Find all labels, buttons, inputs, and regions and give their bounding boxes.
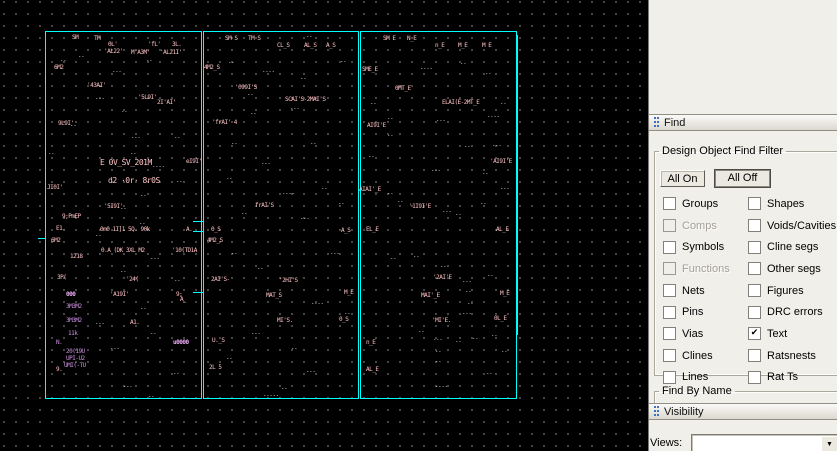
silkscreen-text: A_S (326, 43, 335, 49)
silkscreen-text: .. (435, 358, 441, 364)
checkbox-box[interactable] (663, 327, 676, 340)
checkbox-label: Figures (767, 285, 804, 297)
silkscreen-text: .. (390, 255, 396, 261)
chevron-down-icon[interactable]: ▼ (821, 436, 837, 451)
silkscreen-text: A. (186, 227, 192, 233)
silkscreen-text: .. (321, 185, 327, 191)
silkscreen-text: .. (485, 70, 491, 76)
silkscreen-text: 3P( (57, 275, 66, 281)
silkscreen-text: ... (300, 215, 309, 221)
silkscreen-text: N. (56, 340, 62, 346)
silkscreen-text: A_ (180, 297, 186, 303)
silkscreen-text: .... (420, 65, 432, 71)
silkscreen-text: d2 ·0r· 8r0S (108, 178, 160, 184)
silkscreen-text: E 0V_SV_201M (100, 160, 152, 166)
silkscreen-text: .. (300, 75, 306, 81)
checkbox-label: Lines (682, 371, 708, 383)
checkbox-box (663, 262, 676, 275)
silkscreen-text: AL_E (366, 367, 378, 373)
silkscreen-text: .. (226, 175, 232, 181)
board-tick (193, 292, 203, 293)
views-combobox[interactable]: ▼ (691, 434, 837, 451)
silkscreen-text: M E (482, 43, 491, 49)
silkscreen-text: M_E (458, 43, 467, 49)
silkscreen-text: ..... (263, 392, 279, 398)
checkbox-box[interactable] (663, 371, 676, 384)
checkmark-icon: ✔ (751, 328, 759, 338)
silkscreen-text: n_E (366, 340, 375, 346)
silkscreen-text: '43AI' (87, 83, 106, 89)
silkscreen-text: frAI'S (255, 203, 274, 209)
silkscreen-text: A1. (130, 320, 139, 326)
silkscreen-text: .. (121, 108, 127, 114)
silkscreen-text: ... (442, 208, 451, 214)
silkscreen-text: .... (487, 113, 499, 119)
silkscreen-text: ... (290, 105, 299, 111)
silkscreen-text: n_E (435, 43, 444, 49)
silkscreen-text: 2I'AI' (157, 100, 176, 106)
silkscreen-text: ... (123, 383, 132, 389)
views-label: Views: (650, 437, 682, 449)
silkscreen-text: .. (120, 205, 126, 211)
silkscreen-text: ... (261, 160, 270, 166)
silkscreen-text: .. (465, 288, 471, 294)
silkscreen-text: .. (48, 150, 54, 156)
silkscreen-text: .. (173, 370, 179, 376)
silkscreen-text: .. (241, 210, 247, 216)
silkscreen-text: ... (492, 142, 501, 148)
silkscreen-text: .. (78, 53, 84, 59)
silkscreen-text: .. (174, 277, 180, 283)
silkscreen-text: UMI(-TU (64, 363, 86, 369)
checkbox-box[interactable] (748, 306, 761, 319)
checkbox-box[interactable] (748, 371, 761, 384)
silkscreen-text: .. (340, 58, 346, 64)
silkscreen-text: AIAI'_E (359, 187, 381, 193)
silkscreen-text: 2L 5 (209, 365, 221, 371)
checkbox-label: Cline segs (767, 241, 818, 253)
checkbox-ratsnests[interactable]: Ratsnests (748, 345, 837, 367)
silkscreen-text: 0.A (DK 3XL M2 (101, 248, 145, 254)
silkscreen-text: .. (486, 370, 492, 376)
checkbox-label: Functions (682, 263, 730, 275)
silkscreen-text: 'MI'E. (432, 318, 451, 324)
checkbox-box[interactable] (663, 241, 676, 254)
silkscreen-text: '2HI'S (279, 278, 298, 284)
panel-grip-icon (654, 406, 659, 417)
silkscreen-text: .. (387, 132, 393, 138)
silkscreen-text: A_S (341, 228, 350, 234)
checkbox-text[interactable]: ✔Text (748, 323, 837, 345)
silkscreen-text: ... (131, 134, 140, 140)
silkscreen-text: .. (291, 345, 297, 351)
silkscreen-text: .. (387, 115, 393, 121)
silkscreen-text: ... (95, 95, 104, 101)
silkscreen-text: ... (95, 320, 104, 326)
silkscreen-text: .. (480, 200, 486, 206)
silkscreen-text: SM E (383, 36, 395, 42)
checkbox-label: Pins (682, 306, 703, 318)
checkbox-comps: Comps (663, 215, 748, 237)
silkscreen-text: .. (247, 91, 253, 97)
silkscreen-text: MAI'_E (421, 293, 440, 299)
silkscreen-text: .. (464, 143, 470, 149)
silkscreen-text: .. (130, 150, 136, 156)
silkscreen-text: '2AI'E (433, 275, 452, 281)
checkbox-box[interactable] (748, 284, 761, 297)
visibility-panel-body: Views: ▼ (649, 420, 837, 451)
find-filter-group-title: Design Object Find Filter (659, 145, 786, 157)
silkscreen-text: .. (60, 57, 66, 63)
silkscreen-text: ... (462, 310, 471, 316)
checkbox-label: Text (767, 328, 787, 340)
checkbox-label: Voids/Cavities (767, 220, 836, 232)
silkscreen-text: JI0I' (47, 185, 63, 191)
silkscreen-text: .. (231, 250, 237, 256)
checkbox-other-segs[interactable]: Other segs (748, 258, 837, 280)
silkscreen-text: .. (120, 268, 126, 274)
silkscreen-text: EL_E (366, 227, 378, 233)
silkscreen-text: AI9I'E (367, 123, 386, 129)
silkscreen-text: SM S (225, 36, 237, 42)
checkbox-label: Groups (682, 198, 718, 210)
silkscreen-text: TM S (248, 36, 260, 42)
silkscreen-text: MI'S. (277, 318, 293, 324)
silkscreen-text: .. (440, 263, 446, 269)
design-canvas[interactable]: SMTM0L''fL'3L.'AL22'M'A3M''AL21I'6M2'43A… (0, 0, 648, 451)
silkscreen-text: .. (487, 272, 493, 278)
checkbox-box checked[interactable]: ✔ (748, 327, 761, 340)
silkscreen-text: 2AI'S- (211, 277, 230, 283)
board-tick (193, 231, 203, 232)
silkscreen-text: .. (482, 170, 488, 176)
checkbox-label: Other segs (767, 263, 821, 275)
silkscreen-text: 'AL21I' (160, 50, 182, 56)
silkscreen-text: 1218 (70, 254, 82, 260)
silkscreen-text: .. (281, 385, 287, 391)
silkscreen-text: .. (250, 110, 256, 116)
checkbox-cline-segs[interactable]: Cline segs (748, 236, 837, 258)
silkscreen-text: .. (501, 348, 507, 354)
silkscreen-text: ... (436, 117, 445, 123)
silkscreen-text: 3M3M2 (66, 318, 82, 324)
silkscreen-text: 9. (56, 367, 62, 373)
checkbox-label: Comps (682, 220, 717, 232)
silkscreen-text: 0L_E (494, 316, 506, 322)
silkscreen-text: 4M2_S (204, 65, 220, 71)
checkbox-symbols[interactable]: Symbols (663, 236, 748, 258)
checkbox-shapes[interactable]: Shapes (748, 193, 837, 215)
silkscreen-text: .. (174, 134, 180, 140)
checkbox-voids-cavities[interactable]: Voids/Cavities (748, 215, 837, 237)
checkbox-box[interactable] (748, 262, 761, 275)
checkbox-label: Clines (682, 350, 713, 362)
design-object-find-filter-group: Design Object Find Filter All On All Off… (654, 145, 837, 376)
silkscreen-text: eI9I' (186, 159, 202, 165)
checkbox-box (663, 219, 676, 232)
silkscreen-text: .... (262, 68, 274, 74)
app-root: SMTM0L''fL'3L.'AL22'M'A3M''AL21I'6M2'43A… (0, 0, 837, 451)
checkbox-label: Rat Ts (767, 371, 798, 383)
board-outline (360, 31, 517, 399)
silkscreen-text: .... (311, 300, 323, 306)
silkscreen-text: 000 (66, 292, 75, 298)
silkscreen-text: 0_S (211, 227, 220, 233)
find-panel-header[interactable]: Find (649, 114, 837, 131)
silkscreen-text: 0_S (339, 317, 348, 323)
board-outline (203, 31, 359, 399)
checkbox-box[interactable] (748, 219, 761, 232)
silkscreen-text: .. (231, 140, 237, 146)
silkscreen-text: E1. (56, 226, 65, 232)
checkbox-clines[interactable]: Clines (663, 345, 748, 367)
board-tick (517, 35, 518, 335)
silkscreen-text: 'AI9I'E (490, 159, 512, 165)
checkbox-functions: Functions (663, 258, 748, 280)
checkbox-drc-errors[interactable]: DRC errors (748, 301, 837, 323)
silkscreen-text: .. (139, 220, 145, 226)
find-filter-checkbox-grid: Groups Shapes Comps Voids/Cavities Symbo… (663, 193, 837, 388)
checkbox-label: Ratsnests (767, 350, 816, 362)
checkbox-label: Nets (682, 285, 705, 297)
silkscreen-text: .. (140, 305, 146, 311)
silkscreen-text: .. (472, 335, 478, 341)
board-tick (38, 238, 46, 239)
silkscreen-text: 11k (68, 331, 77, 337)
silkscreen-text: '1I9I'E (409, 204, 431, 210)
silkscreen-text: ... (330, 250, 339, 256)
silkscreen-text: ELAI(E-2MT_E (442, 100, 479, 106)
silkscreen-text: AL_S (304, 43, 316, 49)
silkscreen-text: .. (95, 232, 101, 238)
checkbox-nets[interactable]: Nets (663, 280, 748, 302)
silkscreen-text: .... (152, 163, 164, 169)
checkbox-box[interactable] (663, 349, 676, 362)
silkscreen-text: '099I'S (235, 85, 257, 91)
checkbox-groups[interactable]: Groups (663, 193, 748, 215)
silkscreen-text: .. (226, 355, 232, 361)
silkscreen-text: .. (310, 140, 316, 146)
all-off-button[interactable]: All Off (714, 169, 771, 188)
silkscreen-text: .. (306, 33, 312, 39)
visibility-panel-header[interactable]: Visibility (649, 403, 837, 420)
silkscreen-text: .. (455, 338, 461, 344)
silkscreen-text: 6M2 (54, 65, 63, 71)
checkbox-vias[interactable]: Vias (663, 323, 748, 345)
checkbox-label: Symbols (682, 241, 724, 253)
checkbox-box[interactable] (663, 197, 676, 210)
silkscreen-text: 6M2 (51, 238, 60, 244)
silkscreen-text: ... (150, 255, 159, 261)
all-on-button[interactable]: All On (660, 170, 705, 187)
silkscreen-text: .. (176, 178, 182, 184)
silkscreen-text: ... (433, 336, 442, 342)
silkscreen-text: M_E (344, 290, 353, 296)
silkscreen-text: .. (435, 348, 441, 354)
silkscreen-text: .. (387, 190, 393, 196)
silkscreen-text: .. (467, 300, 473, 306)
checkbox-label: DRC errors (767, 306, 823, 318)
silkscreen-text: .. (257, 265, 263, 271)
visibility-panel-title: Visibility (664, 406, 704, 418)
silkscreen-text: 3M3M2 (66, 304, 82, 310)
silkscreen-text: '10(TD1A (172, 248, 197, 254)
silkscreen-text: 'fL' (148, 42, 160, 48)
silkscreen-text: .. (418, 328, 424, 334)
silkscreen-text: '24( (126, 277, 138, 283)
silkscreen-text: M_E (500, 291, 509, 297)
checkbox-box[interactable] (748, 241, 761, 254)
checkbox-box[interactable] (663, 306, 676, 319)
silkscreen-text: U._S (212, 338, 224, 344)
silkscreen-text: N_E (407, 36, 416, 42)
silkscreen-text: ... (462, 278, 471, 284)
silkscreen-text: .. (140, 192, 146, 198)
silkscreen-text: .... (435, 383, 447, 389)
checkbox-figures[interactable]: Figures (748, 280, 837, 302)
silkscreen-text: SME_E (362, 67, 378, 73)
checkbox-box[interactable] (748, 197, 761, 210)
silkscreen-text: 'A19I' (110, 292, 129, 298)
silkscreen-text: .. (455, 211, 461, 217)
silkscreen-text: ... (251, 330, 260, 336)
silkscreen-text: .. (338, 200, 344, 206)
silkscreen-text: 'frAI' 4 (212, 120, 237, 126)
silkscreen-text: .. (500, 100, 506, 106)
silkscreen-text: .. (397, 198, 403, 204)
checkbox-label: Shapes (767, 198, 804, 210)
silkscreen-text: .. (70, 122, 76, 128)
silkscreen-text: .. (413, 253, 419, 259)
silkscreen-text: ... (110, 345, 119, 351)
silkscreen-text: 0MT_E (395, 86, 411, 92)
silkscreen-text: .. (344, 310, 350, 316)
silkscreen-text: .. (228, 59, 234, 65)
silkscreen-text: CL_S (277, 43, 289, 49)
silkscreen-text: SCAI'S-2MAI'S (285, 97, 325, 103)
checkbox-label: Vias (682, 328, 703, 340)
silkscreen-text: .... (282, 190, 294, 196)
silkscreen-text: ... (500, 185, 509, 191)
silkscreen-text: SM (72, 35, 78, 41)
control-panel-sidebar: Find Design Object Find Filter All On Al… (648, 0, 837, 451)
silkscreen-text: .. (146, 57, 152, 63)
silkscreen-text: 'AL22' (104, 49, 123, 55)
silkscreen-text: u0000 (173, 340, 189, 346)
silkscreen-text: TM (94, 36, 100, 42)
silkscreen-text: AL_E (496, 227, 508, 233)
silkscreen-text: .. (150, 330, 156, 336)
silkscreen-text: 9;PmEP (62, 214, 81, 220)
panel-grip-icon (654, 117, 659, 128)
silkscreen-text: .. (368, 153, 374, 159)
silkscreen-text: .. (370, 100, 376, 106)
board-tick (193, 221, 203, 222)
silkscreen-text: ... (112, 68, 121, 74)
silkscreen-text: ... (306, 368, 315, 374)
find-panel-title: Find (664, 117, 685, 129)
silkscreen-text: .. (460, 60, 466, 66)
silkscreen-text: 3L. (172, 42, 181, 48)
silkscreen-text: 4M2_S (207, 238, 223, 244)
checkbox-box[interactable] (748, 349, 761, 362)
silkscreen-text: '5L9I' (138, 95, 157, 101)
silkscreen-text: .. (148, 393, 154, 399)
silkscreen-text: ... (431, 167, 440, 173)
silkscreen-text: .. (491, 332, 497, 338)
silkscreen-text: MAT_S (266, 293, 282, 299)
find-by-name-title: Find By Name (659, 385, 735, 397)
checkbox-pins[interactable]: Pins (663, 301, 748, 323)
silkscreen-text: 0m0 1I]1 5Q. 90k (100, 227, 150, 233)
checkbox-box[interactable] (663, 284, 676, 297)
